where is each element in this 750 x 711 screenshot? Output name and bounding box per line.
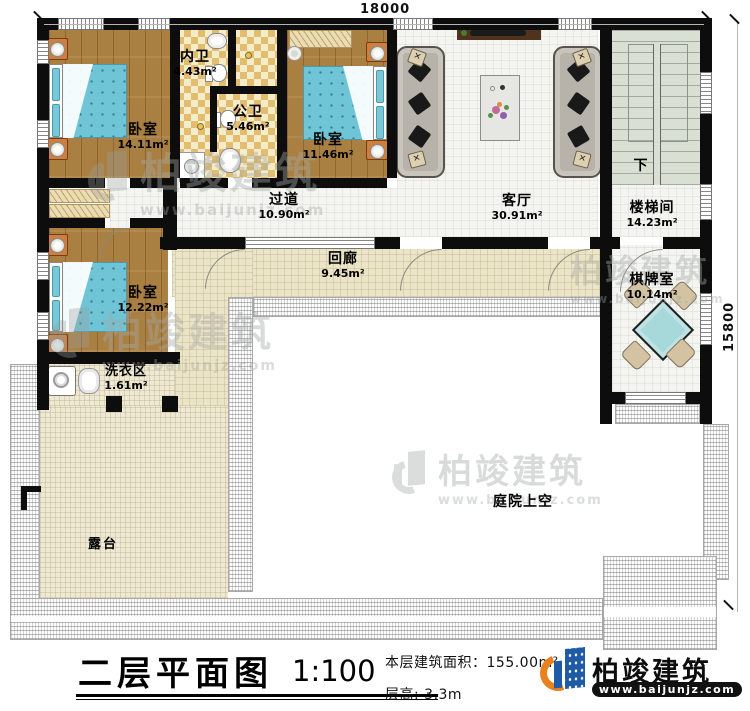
- closet-strip-1: [49, 189, 110, 203]
- window: [37, 40, 49, 64]
- dimension-line-right: [737, 22, 738, 612]
- door-knob-icon: [197, 123, 204, 130]
- nightstand: [46, 38, 68, 60]
- room-area: 1.61m²: [104, 380, 147, 392]
- room-label-stairwell: 楼梯间 14.23m²: [626, 201, 677, 229]
- ceiling-lamp-icon: [287, 46, 302, 61]
- window: [700, 72, 712, 114]
- room-label-hallway: 过道 10.90m²: [258, 193, 309, 221]
- room-name: 过道: [269, 193, 299, 209]
- floor-plan-canvas: ✕ ✕ ✕ ✕: [0, 0, 750, 711]
- wall: [170, 18, 180, 178]
- room-area: 30.91m²: [491, 210, 542, 222]
- courtyard-railing-top: [253, 297, 605, 317]
- railing-gap-line: [11, 616, 602, 622]
- room-label-laundry: 洗衣区 1.61m²: [104, 365, 147, 392]
- room-name: 棋牌室: [629, 273, 674, 289]
- room-label-bedroom-1: 卧室 14.11m²: [117, 123, 168, 151]
- floor-area-text: 本层建筑面积：155.00m²: [385, 652, 559, 672]
- wall: [37, 218, 105, 228]
- dimension-tick: [723, 600, 734, 611]
- nightstand: [46, 138, 68, 160]
- wall: [162, 396, 178, 412]
- wall: [37, 178, 105, 188]
- room-area: 11.46m²: [302, 149, 353, 161]
- dimension-tick: [729, 14, 740, 25]
- floor-height-text: 层高: 3.3m: [385, 684, 462, 704]
- room-name: 公卫: [233, 105, 263, 121]
- room-label-living-room: 客厅 30.91m²: [491, 194, 542, 222]
- title-underline-2: [76, 699, 438, 700]
- wall: [21, 486, 27, 510]
- room-label-bedroom-2: 卧室 11.46m²: [302, 133, 353, 161]
- stair-center-rail: [653, 44, 661, 185]
- wall: [600, 18, 612, 237]
- room-area: 12.22m²: [117, 302, 168, 314]
- wall: [600, 392, 612, 424]
- bedroom-2-bed: [303, 66, 387, 140]
- wall: [442, 237, 548, 249]
- dimension-right-value: 15800: [722, 282, 737, 352]
- nightstand: [46, 234, 68, 256]
- room-label-bedroom-3: 卧室 12.22m²: [117, 286, 168, 314]
- room-area: 14.23m²: [626, 217, 677, 229]
- room-label-terrace: 露台: [88, 538, 118, 553]
- room-name: 卧室: [128, 123, 158, 139]
- room-area: 9.45m²: [321, 268, 364, 280]
- nightstand: [366, 140, 388, 160]
- room-label-courtyard: 庭院上空: [493, 495, 553, 511]
- wall: [277, 18, 287, 178]
- wall: [663, 237, 712, 249]
- dimension-line-top: [44, 24, 704, 25]
- wall: [37, 352, 180, 364]
- closet-strip-2: [49, 204, 110, 218]
- room-label-public-bathroom: 公卫 5.46m²: [226, 105, 269, 133]
- title-underline: [76, 694, 438, 697]
- wall: [160, 237, 245, 249]
- terrace-floor: [40, 406, 228, 598]
- room-name: 露台: [88, 538, 118, 553]
- laundry-basin-icon: [78, 368, 100, 394]
- window: [245, 237, 375, 249]
- wall: [106, 396, 122, 412]
- wall: [210, 94, 217, 152]
- window: [700, 184, 712, 220]
- wall: [375, 237, 400, 249]
- wall: [600, 237, 612, 404]
- room-area: 14.11m²: [117, 139, 168, 151]
- window: [700, 293, 712, 345]
- room-name: 洗衣区: [105, 365, 147, 380]
- dimension-top-value: 18000: [360, 2, 410, 17]
- room-name: 卧室: [313, 133, 343, 149]
- door-knob-icon: [245, 52, 252, 59]
- sink-icon: [219, 148, 241, 173]
- room-area: 10.90m²: [258, 209, 309, 221]
- room-area: 10.14m²: [626, 289, 677, 301]
- wall: [210, 86, 287, 94]
- coffee-table: [480, 75, 520, 141]
- room-name: 庭院上空: [493, 495, 553, 511]
- brand-website: www.baijunjz.com: [592, 682, 742, 697]
- window: [625, 392, 686, 404]
- stairs-direction: 下: [634, 159, 649, 175]
- sink-icon: [207, 33, 227, 49]
- stairs-down-label: 下: [634, 159, 649, 175]
- brand-logo-icon: [540, 648, 590, 696]
- bottom-right-steps: [603, 556, 717, 650]
- room-label-chess-room: 棋牌室 10.14m²: [626, 273, 677, 301]
- room-area: 4.43m²: [173, 66, 216, 78]
- bedroom-3-bed: [49, 262, 127, 332]
- bottom-right-gap-line: [604, 607, 716, 617]
- room-name: 楼梯间: [629, 201, 674, 217]
- room-label-inner-bathroom: 内卫 4.43m²: [173, 50, 216, 78]
- window: [37, 120, 49, 148]
- nightstand: [366, 42, 388, 62]
- courtyard-railing-left: [228, 297, 253, 592]
- watermark-logo-icon: [392, 451, 430, 501]
- plan-title: 二层平面图: [78, 646, 273, 695]
- bedroom-2-wardrobe: [289, 30, 352, 48]
- room-label-cloister: 回廊 9.45m²: [321, 252, 364, 280]
- wall: [252, 178, 387, 188]
- wall: [228, 30, 236, 88]
- room-name: 客厅: [502, 194, 532, 210]
- room-name: 回廊: [328, 252, 358, 268]
- bedroom-1-bed: [49, 64, 127, 138]
- window: [37, 252, 49, 280]
- window: [37, 312, 49, 340]
- wall: [180, 178, 228, 188]
- washing-machine-icon: [48, 366, 76, 396]
- plan-scale: 1:100: [292, 654, 376, 688]
- wall: [700, 392, 712, 424]
- wall: [130, 218, 163, 228]
- room-name: 卧室: [128, 286, 158, 302]
- wall: [387, 18, 397, 178]
- balcony-railing: [615, 404, 700, 424]
- room-area: 5.46m²: [226, 121, 269, 133]
- room-name: 内卫: [180, 50, 210, 66]
